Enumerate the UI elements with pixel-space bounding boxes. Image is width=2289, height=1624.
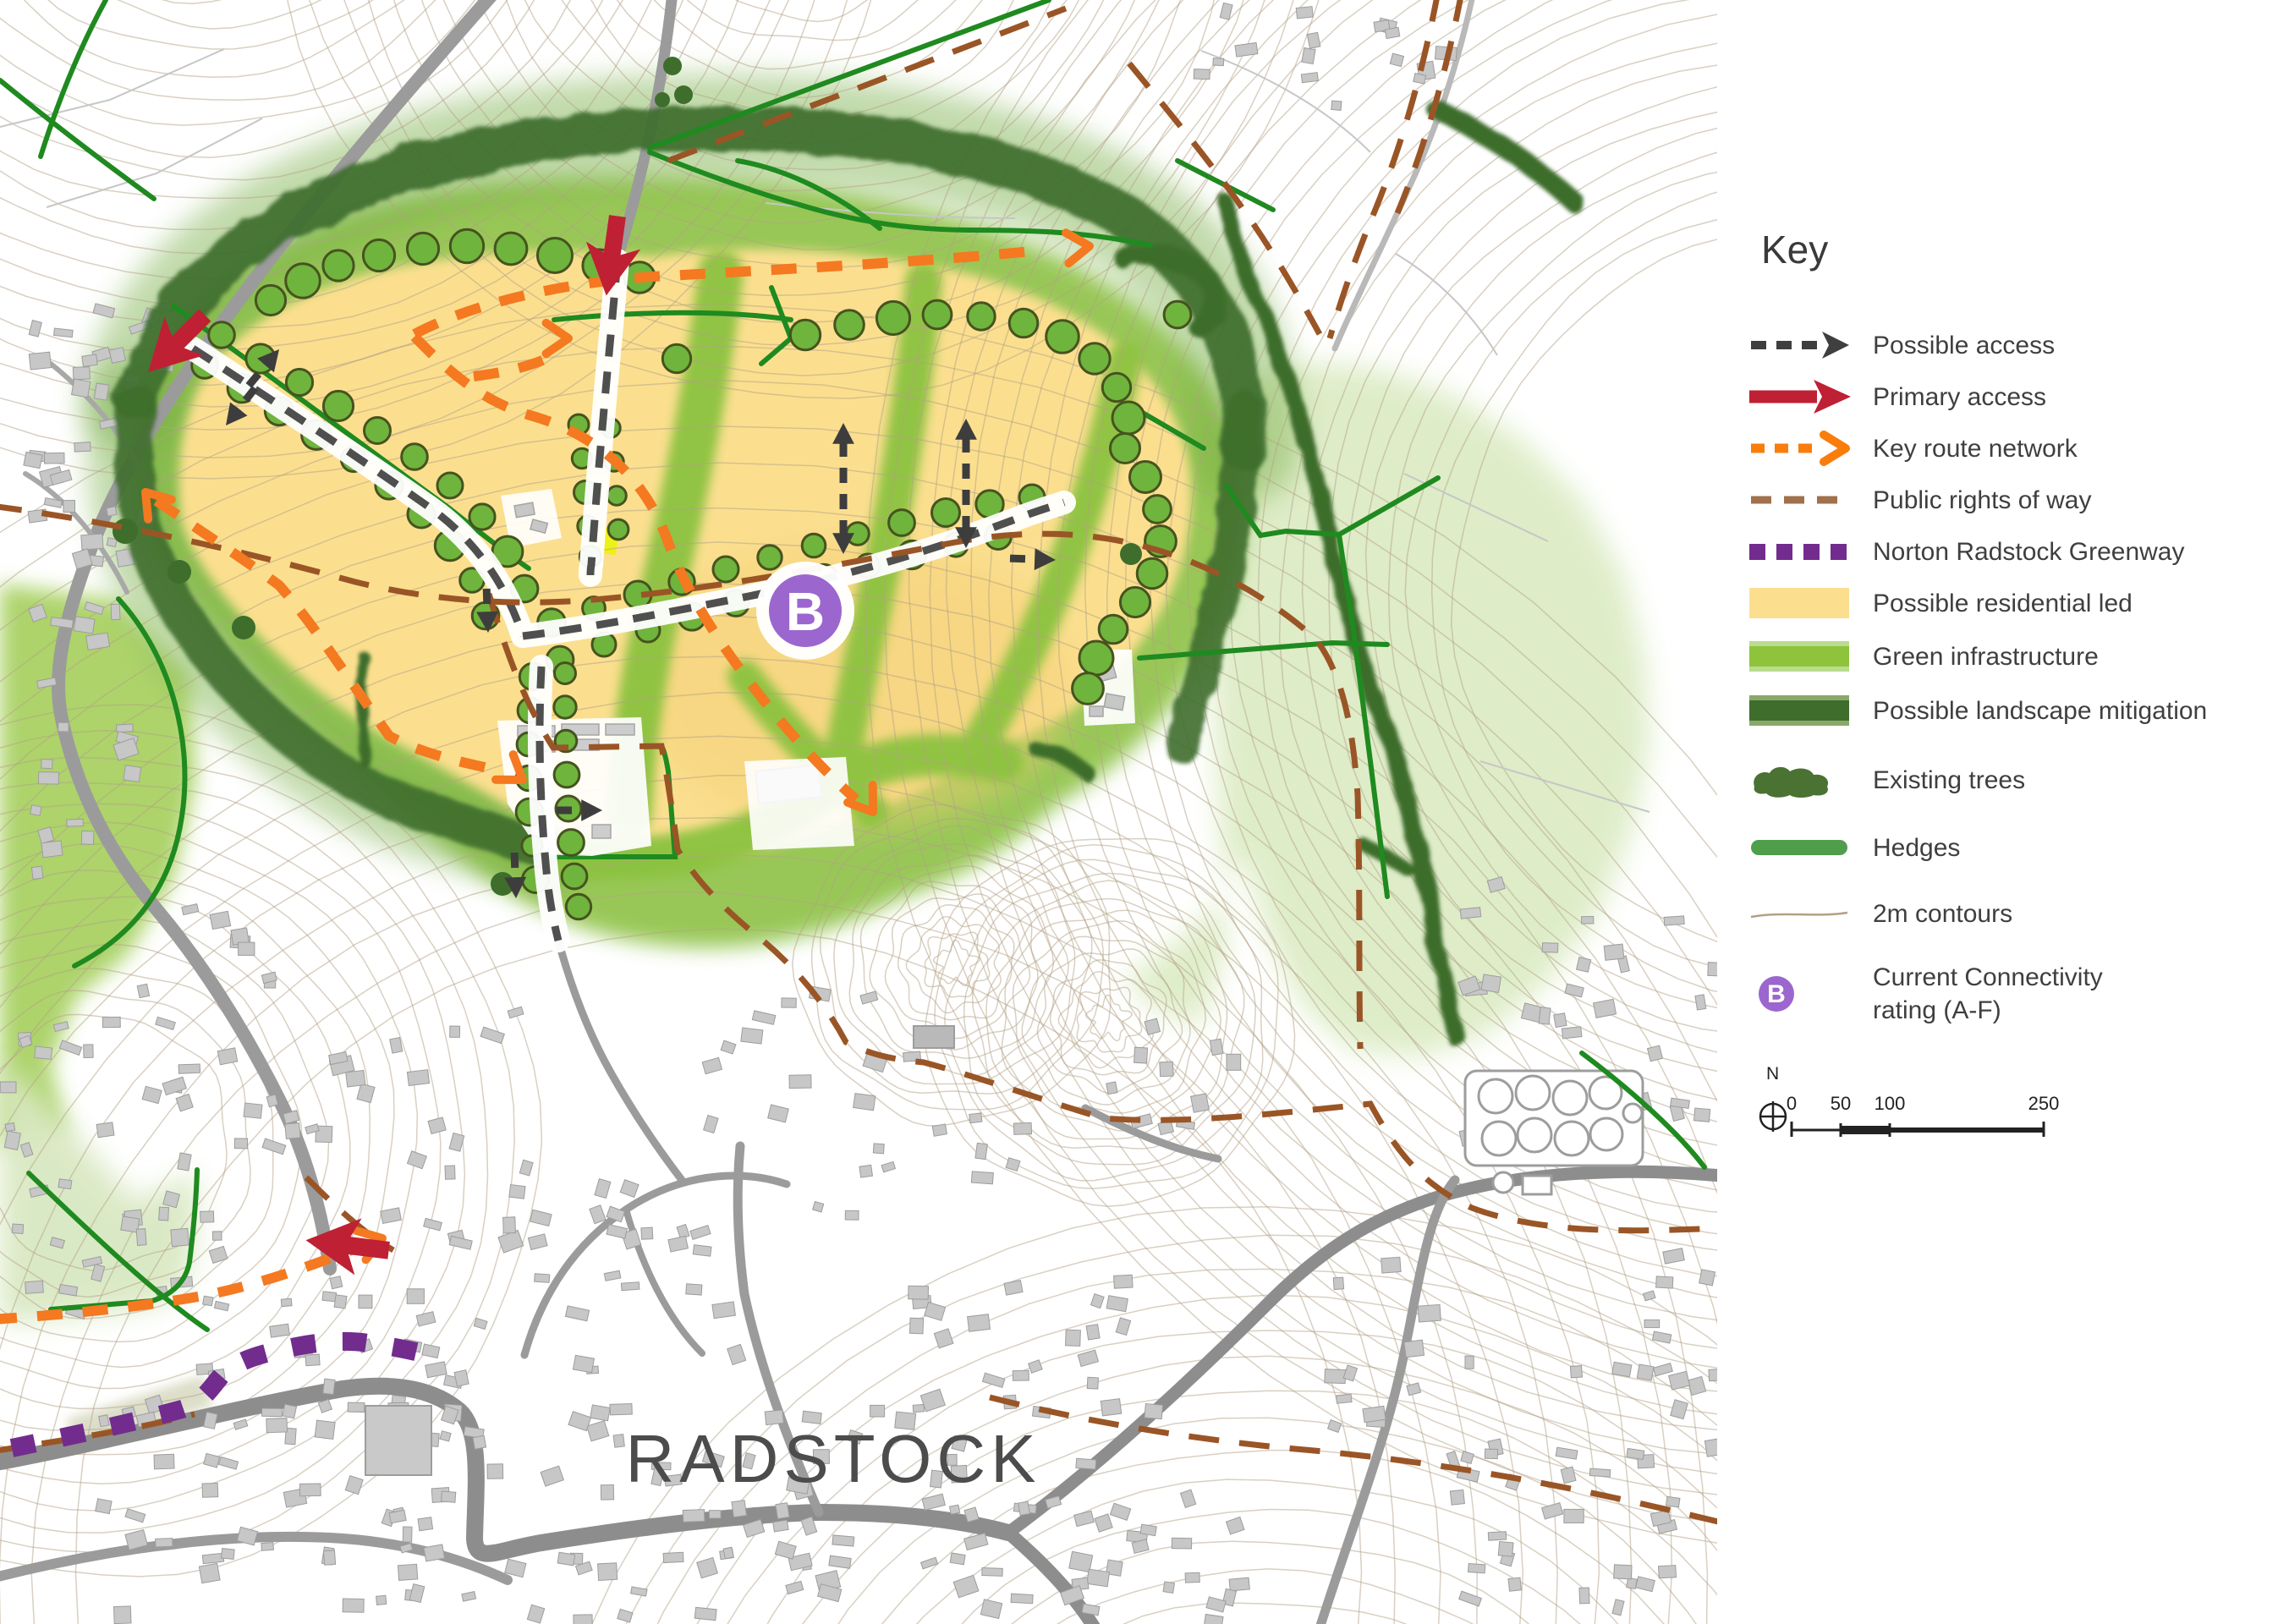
contours-symbol (1748, 895, 1853, 932)
legend-panel: Key Possible access Primary access Key r… (1717, 0, 2289, 1624)
legend-item-existing-trees: Existing trees (1748, 761, 2228, 798)
connectivity-marker-letter: B (786, 581, 825, 642)
legend-title: Key (1761, 227, 1828, 272)
possible-access-symbol (1748, 326, 1853, 364)
mitigation-swatch (1748, 692, 1853, 729)
green-infrastructure-swatch (1748, 638, 1853, 675)
legend-item-primary-access: Primary access (1748, 378, 2228, 415)
legend-item-possible-access: Possible access (1748, 326, 2228, 364)
scale-tick-100: 100 (1875, 1093, 1906, 1114)
residential-swatch (1748, 584, 1853, 622)
legend-item-connectivity-rating: B Current Connectivity rating (A-F) (1748, 961, 2160, 1027)
north-label: N (1766, 1064, 1779, 1084)
legend-item-green-infrastructure: Green infrastructure (1748, 638, 2228, 675)
legend-item-residential: Possible residential led (1748, 584, 2228, 622)
scale-tick-0: 0 (1787, 1093, 1797, 1114)
legend-item-label: Public rights of way (1873, 484, 2228, 517)
radstock-masterplan-screenshot: B RADSTOCK Key Possible access Primary a… (0, 0, 2289, 1624)
legend-item-key-route-network: Key route network (1748, 430, 2228, 467)
legend-item-contours: 2m contours (1748, 895, 2228, 932)
connectivity-marker: B (756, 562, 854, 660)
legend-item-greenway: Norton Radstock Greenway (1748, 533, 2228, 570)
legend-item-label: Possible access (1873, 329, 2228, 362)
scalebar: N 0 50 100 250 (1756, 1064, 2120, 1166)
legend-item-label: Key route network (1873, 432, 2228, 465)
legend-item-label: Existing trees (1873, 764, 2228, 797)
key-route-symbol (1748, 430, 1853, 467)
legend-item-label: Norton Radstock Greenway (1873, 535, 2228, 568)
existing-trees-symbol (1748, 761, 1853, 798)
greenway-symbol (1748, 533, 1853, 570)
legend-item-label: Hedges (1873, 831, 2228, 864)
legend-item-label: Primary access (1873, 381, 2228, 414)
scalebar-graphic: 0 50 100 250 (1756, 1083, 2120, 1159)
legend-item-label: Green infrastructure (1873, 640, 2228, 673)
scale-tick-50: 50 (1831, 1093, 1851, 1114)
legend-marker-letter: B (1767, 980, 1786, 1008)
scale-tick-250: 250 (2028, 1093, 2060, 1114)
place-label: RADSTOCK (625, 1421, 1040, 1496)
legend-item-label: Current Connectivity rating (A-F) (1873, 961, 2160, 1027)
connectivity-marker-symbol: B (1748, 975, 1853, 1012)
legend-item-label: 2m contours (1873, 897, 2228, 930)
legend-item-landscape-mitigation: Possible landscape mitigation (1748, 692, 2228, 729)
legend-item-label: Possible landscape mitigation (1873, 694, 2228, 727)
legend-item-label: Possible residential led (1873, 587, 2228, 620)
hedges-symbol (1748, 829, 1853, 866)
prow-symbol (1748, 481, 1853, 518)
primary-access-symbol (1748, 378, 1853, 415)
legend-item-hedges: Hedges (1748, 829, 2228, 866)
legend-item-public-rights-of-way: Public rights of way (1748, 481, 2228, 518)
